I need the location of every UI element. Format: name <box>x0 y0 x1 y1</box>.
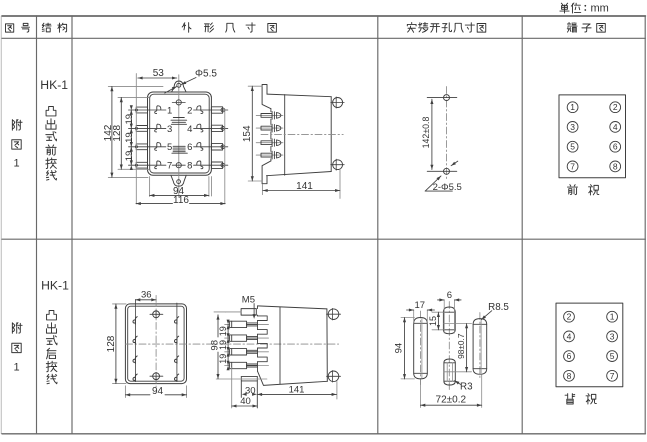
svg-text:3: 3 <box>570 122 575 132</box>
svg-text:HK-1: HK-1 <box>41 279 69 293</box>
svg-text:116: 116 <box>173 195 189 206</box>
svg-text:1: 1 <box>13 158 19 170</box>
svg-text:1: 1 <box>13 362 19 374</box>
svg-text:4: 4 <box>187 124 192 135</box>
svg-text:Φ5.5: Φ5.5 <box>195 69 217 80</box>
svg-text:M5: M5 <box>242 294 255 305</box>
svg-text:17: 17 <box>415 300 426 311</box>
svg-text:3: 3 <box>610 331 615 341</box>
svg-text:6: 6 <box>447 290 452 301</box>
svg-text:141: 141 <box>289 385 305 396</box>
svg-text:6: 6 <box>613 142 618 152</box>
svg-text:53: 53 <box>153 68 165 79</box>
svg-text:19: 19 <box>124 132 135 143</box>
svg-text:6: 6 <box>567 351 572 361</box>
svg-text:7: 7 <box>570 161 575 171</box>
svg-text:94: 94 <box>152 386 164 397</box>
svg-text:1: 1 <box>167 105 172 116</box>
svg-text:6: 6 <box>187 142 192 153</box>
svg-text:3: 3 <box>167 124 172 135</box>
svg-text:5: 5 <box>167 142 172 153</box>
svg-text:2-Φ5.5: 2-Φ5.5 <box>433 182 462 193</box>
svg-text:19: 19 <box>218 326 228 336</box>
svg-text:15: 15 <box>428 316 438 326</box>
svg-text:142±0.8: 142±0.8 <box>421 117 431 149</box>
svg-text:2: 2 <box>613 102 618 112</box>
svg-text:4: 4 <box>567 331 572 341</box>
svg-text:98±0.7: 98±0.7 <box>456 333 466 359</box>
svg-text:mm: mm <box>591 3 609 15</box>
svg-text:19: 19 <box>218 340 228 350</box>
svg-text:1: 1 <box>610 312 615 322</box>
svg-text:7: 7 <box>610 371 615 381</box>
svg-text:2: 2 <box>187 105 192 116</box>
svg-text:128: 128 <box>112 125 123 142</box>
svg-text:154: 154 <box>242 125 253 142</box>
svg-text:4: 4 <box>613 122 618 132</box>
svg-text:19: 19 <box>218 354 228 364</box>
svg-text:141: 141 <box>296 181 313 192</box>
svg-text:8: 8 <box>567 371 572 381</box>
svg-text:8: 8 <box>613 161 618 171</box>
svg-text:19: 19 <box>124 151 135 162</box>
svg-text:128: 128 <box>106 335 117 352</box>
svg-text:R3: R3 <box>460 382 473 393</box>
svg-text:7: 7 <box>167 161 172 172</box>
svg-text:5: 5 <box>570 142 575 152</box>
svg-text:40: 40 <box>240 396 251 407</box>
svg-text:94: 94 <box>394 343 405 354</box>
svg-text:2: 2 <box>567 312 572 322</box>
svg-text:19: 19 <box>124 114 135 125</box>
svg-text:8: 8 <box>187 161 192 172</box>
svg-text:HK-1: HK-1 <box>40 78 68 92</box>
svg-text:1: 1 <box>570 102 575 112</box>
svg-text:36: 36 <box>141 290 152 301</box>
svg-text:72±0.2: 72±0.2 <box>436 395 467 406</box>
svg-text:5: 5 <box>610 351 615 361</box>
